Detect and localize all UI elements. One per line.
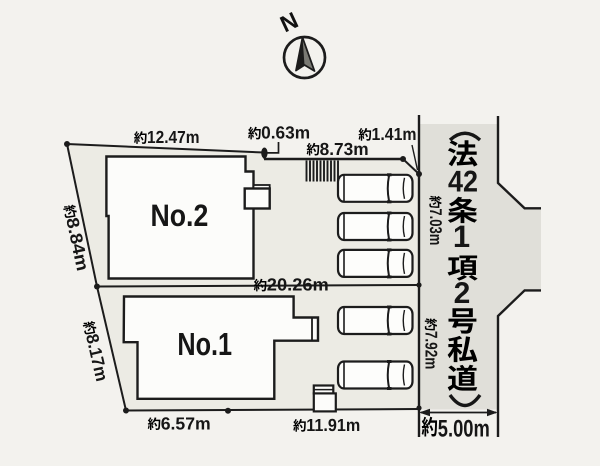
svg-text:1: 1: [453, 219, 470, 254]
svg-text:11.91m: 11.91m: [306, 415, 360, 435]
svg-text:0.63m: 0.63m: [261, 123, 310, 143]
svg-text:6.57m: 6.57m: [161, 413, 211, 433]
svg-text:12.47m: 12.47m: [147, 127, 200, 147]
svg-text:5.00m: 5.00m: [438, 415, 490, 442]
svg-text:1.41m: 1.41m: [372, 124, 417, 144]
svg-text:7.03m: 7.03m: [426, 208, 445, 245]
svg-text:No.2: No.2: [151, 198, 209, 233]
svg-text:42: 42: [448, 165, 478, 198]
svg-text:8.73m: 8.73m: [320, 139, 369, 159]
svg-text:20.26m: 20.26m: [267, 275, 329, 295]
svg-text:No.1: No.1: [177, 326, 232, 362]
svg-text:2: 2: [454, 277, 471, 310]
svg-text:7.92m: 7.92m: [422, 331, 441, 370]
